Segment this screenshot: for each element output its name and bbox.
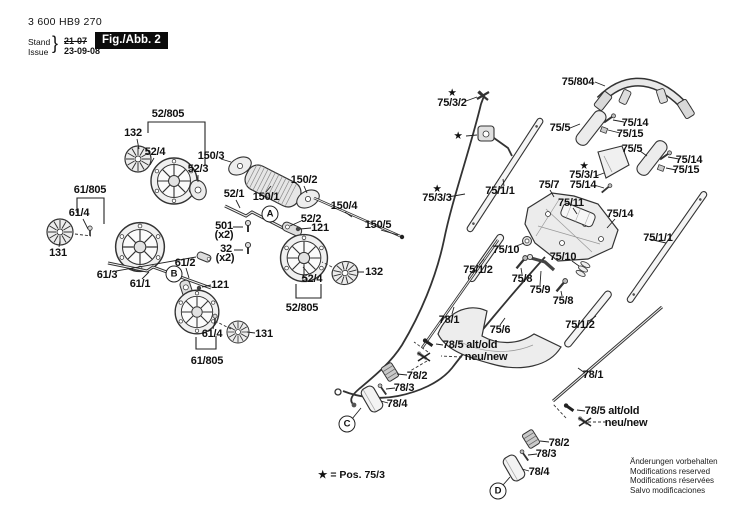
part-label: 150/2	[291, 174, 318, 186]
legal-line: Modifications réservées	[630, 476, 718, 486]
part-label: 78/4	[387, 398, 408, 410]
part-label: (x2)	[216, 252, 235, 264]
part-label: 78/1	[439, 314, 460, 326]
part-label: 52/4	[302, 273, 323, 285]
part-label: 75/5	[550, 122, 571, 134]
part-label: 61/1	[130, 278, 151, 290]
part-label: neu/new	[605, 417, 648, 429]
part-label: neu/new	[465, 351, 508, 363]
part-label: 150/5	[365, 219, 392, 231]
part-label: 75/10	[493, 244, 520, 256]
part-label: 52/3	[188, 163, 209, 175]
part-label: 78/1	[583, 369, 604, 381]
section-marker-a: A	[262, 206, 279, 223]
part-label: 75/1/1	[485, 185, 514, 197]
part-label: 75/1/2	[463, 264, 492, 276]
part-label: 132	[124, 127, 142, 139]
part-label: 78/3	[536, 448, 557, 460]
part-label: 75/804	[562, 76, 594, 88]
part-label: 75/1/2	[565, 319, 594, 331]
part-label: 121	[211, 279, 229, 291]
part-label: 75/15	[673, 164, 700, 176]
part-label: 52/805	[152, 108, 184, 120]
part-label: 150/3	[198, 150, 225, 162]
part-label: 78/4	[529, 466, 550, 478]
part-label: 75/1/1	[643, 232, 672, 244]
part-label: 78/3	[394, 382, 415, 394]
legal-line: Salvo modificaciones	[630, 486, 718, 496]
part-label: 132	[365, 266, 383, 278]
legal-line: Änderungen vorbehalten	[630, 457, 718, 467]
star-footnote: ★ = Pos. 75/3	[318, 469, 385, 481]
exploded-view-drawing	[0, 0, 750, 530]
part-label: 52/1	[224, 188, 245, 200]
part-label: 150/1	[253, 191, 280, 203]
part-label: 75/14	[607, 208, 634, 220]
part-label: 61/3	[97, 269, 118, 281]
part-label: 52/805	[286, 302, 318, 314]
part-label: 131	[255, 328, 273, 340]
part-label: 121	[311, 222, 329, 234]
part-label: 75/11	[558, 197, 584, 209]
part-label: 75/9	[530, 284, 551, 296]
part-label: 61/805	[74, 184, 106, 196]
part-label: ★	[454, 131, 462, 142]
part-label: 75/5	[622, 143, 643, 155]
section-marker-b: B	[166, 266, 183, 283]
part-label: 75/3/2	[437, 97, 466, 109]
part-label: 61/4	[202, 328, 223, 340]
part-label: (x2)	[215, 229, 234, 241]
part-label: 131	[49, 247, 67, 259]
part-label: 75/15	[617, 128, 644, 140]
part-label: 78/2	[407, 370, 428, 382]
part-label: 61/4	[69, 207, 90, 219]
part-label: 75/6	[490, 324, 511, 336]
parts-diagram-page: 3 600 HB9 270 Stand Issue } 21-07 23-09-…	[0, 0, 750, 530]
part-label: 75/14	[570, 179, 597, 191]
section-marker-c: C	[339, 416, 356, 433]
part-label: 75/3/3	[422, 192, 451, 204]
part-label: 61/805	[191, 355, 223, 367]
section-marker-d: D	[490, 483, 507, 500]
part-label: 75/7	[539, 179, 560, 191]
legal-line: Modifications reserved	[630, 467, 718, 477]
part-label: 150/4	[331, 200, 358, 212]
part-label: 78/5 alt/old	[443, 339, 497, 351]
part-label: 75/8	[553, 295, 574, 307]
part-label: 78/5 alt/old	[585, 405, 639, 417]
part-label: 52/4	[145, 146, 166, 158]
roller-shape	[241, 161, 304, 210]
part-label: 75/10	[550, 251, 577, 263]
legal-notice: Änderungen vorbehalten Modifications res…	[630, 457, 718, 495]
